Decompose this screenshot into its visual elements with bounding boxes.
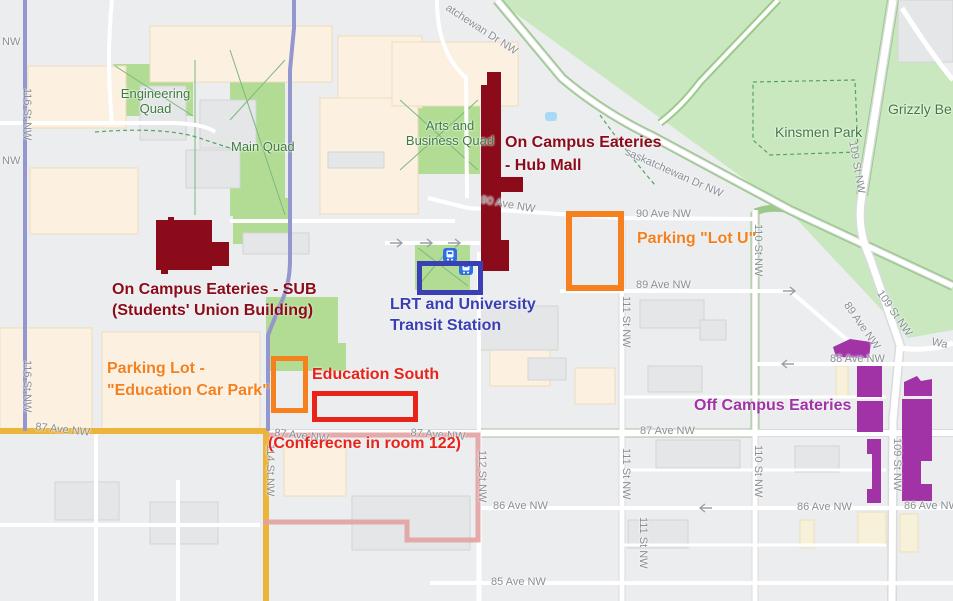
street-label-116st-b: 116 St NW <box>21 360 33 412</box>
area-label-kinsmen-park: Kinsmen Park <box>775 124 862 140</box>
street-label-110st-b: 110 St NW <box>752 445 764 497</box>
annotation-lrt-line1: LRT and University <box>390 296 536 314</box>
street-label-85ave: 85 Ave NW <box>491 576 546 588</box>
street-label-88ave: 88 Ave NW <box>830 353 885 365</box>
street-label-111st-b: 111 St NW <box>620 448 632 500</box>
annotation-hub-mall-line1: On Campus Eateries <box>505 134 662 152</box>
street-label-87ave-d: 87 Ave NW <box>640 425 695 437</box>
street-label-86ave-b: 86 Ave NW <box>797 501 852 513</box>
annotation-lrt-line2: Transit Station <box>390 317 501 335</box>
street-label-111st-c: 111 St NW <box>637 517 649 569</box>
area-label-engineering-quad: Engineering Quad <box>108 86 203 116</box>
parking-lot-u-box <box>566 211 624 291</box>
area-label-arts-business-quad: Arts and Business Quad <box>400 118 500 148</box>
street-label-112st: 112 St NW <box>476 450 488 502</box>
street-label-89ave-a: 89 Ave NW <box>636 279 691 291</box>
street-label-90ave-b: 90 Ave NW <box>636 208 691 220</box>
annotation-off-campus-eateries: Off Campus Eateries <box>694 397 851 415</box>
map-canvas[interactable]: NW NW 116 St NW 116 St NW 114 St NW 112 … <box>0 0 953 601</box>
street-label-116st-a: 116 St NW <box>21 88 33 140</box>
annotation-sub-line1: On Campus Eateries - SUB <box>112 281 317 299</box>
street-label-86ave-a: 86 Ave NW <box>493 500 548 512</box>
street-label-86ave-c: 86 Ave NW <box>904 500 953 512</box>
street-label-111st-a: 111 St NW <box>620 296 632 348</box>
annotation-conference-room: (Conferecne in room 122) <box>268 435 461 453</box>
street-label-109st-c: 109 St NW <box>891 438 903 491</box>
annotation-parking-lot-u: Parking "Lot U" <box>637 230 756 248</box>
annotation-education-south: Education South <box>312 366 439 384</box>
annotation-education-car-park-line2: "Education Car Park" <box>107 382 270 400</box>
annotation-sub-line2: (Students' Union Building) <box>112 302 313 320</box>
annotation-education-car-park-line1: Parking Lot - <box>107 360 205 378</box>
annotation-hub-mall-line2: - Hub Mall <box>505 157 581 175</box>
education-south-box <box>312 391 418 422</box>
area-label-main-quad: Main Quad <box>231 139 295 154</box>
education-car-park-box <box>271 356 308 413</box>
lrt-station-box <box>417 261 483 295</box>
area-label-grizzly-bear: Grizzly Be <box>888 101 952 117</box>
street-label-nw-a: NW <box>2 36 20 48</box>
pond <box>545 112 557 121</box>
street-label-nw-b: NW <box>2 155 20 167</box>
